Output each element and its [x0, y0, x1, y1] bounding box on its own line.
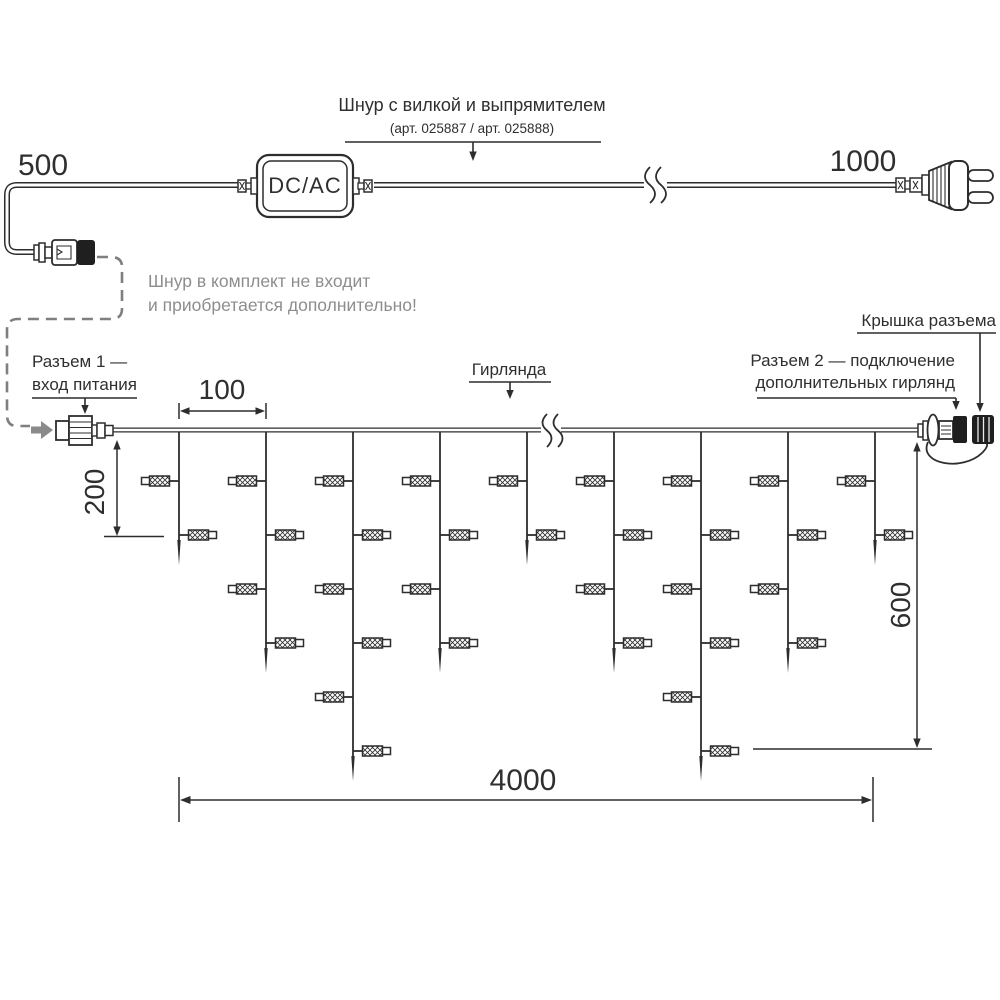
- lamp-right: [701, 530, 739, 540]
- lamp-left: [403, 584, 441, 594]
- dimension-4000: 4000: [179, 764, 873, 822]
- dimension-600: 600: [753, 442, 932, 749]
- lamp-left: [577, 584, 615, 594]
- lamp-right: [614, 638, 652, 648]
- callouts: Разъем 1 — вход питания Гирлянда Разъем …: [32, 311, 997, 414]
- strand: [229, 433, 304, 674]
- connector2-body: [953, 416, 967, 443]
- strand: [577, 433, 652, 674]
- strand: [316, 433, 391, 782]
- cord-right-wire: [374, 167, 897, 203]
- cap-label: Крышка разъема: [861, 311, 996, 330]
- lamp-left: [664, 476, 702, 486]
- cord-left-wire: [7, 185, 238, 252]
- lamp-left: [316, 476, 354, 486]
- lamp-left: [229, 584, 267, 594]
- lamp-right: [353, 530, 391, 540]
- garland-main-wire: [113, 414, 918, 447]
- dimension-100: 100: [179, 374, 266, 419]
- strand: [403, 433, 478, 674]
- cord-label-line1: Шнур с вилкой и выпрямителем: [338, 95, 605, 115]
- connector-cap: [972, 415, 994, 444]
- lamp-right: [527, 530, 565, 540]
- plug-pin: [968, 170, 993, 181]
- dimension-200: 200: [79, 440, 164, 537]
- lamp-right: [440, 530, 478, 540]
- note-line1: Шнур в комплект не входит: [148, 271, 370, 291]
- garland-assembly: [56, 414, 994, 781]
- garland-diagram: DC/AC: [0, 0, 1000, 1000]
- lamp-right: [701, 746, 739, 756]
- connector-black-cap: [77, 240, 95, 265]
- cord-label-line2: (арт. 025887 / арт. 025888): [390, 121, 554, 136]
- lamp-left: [838, 476, 876, 486]
- connector1-label-line2: вход питания: [32, 375, 137, 394]
- dim-1000: 1000: [830, 145, 897, 178]
- lamp-right: [179, 530, 217, 540]
- wire-break-icon: [645, 167, 655, 203]
- note-line2: и приобретается дополнительно!: [148, 295, 417, 315]
- lamp-left: [751, 584, 789, 594]
- strand: [751, 433, 826, 674]
- lamp-left: [490, 476, 528, 486]
- connector2-label-line1: Разъем 2 — подключение: [750, 351, 955, 370]
- strand: [838, 433, 913, 566]
- garland-leader: [469, 382, 551, 399]
- dim-200-text: 200: [79, 469, 110, 516]
- garland-connector-1: [56, 416, 113, 445]
- diagram-page: DC/AC: [0, 0, 1000, 1000]
- dim-100-text: 100: [199, 374, 246, 405]
- garland-label: Гирлянда: [472, 360, 547, 379]
- lamp-left: [403, 476, 441, 486]
- plug-pin: [968, 192, 993, 203]
- lamp-right: [701, 638, 739, 648]
- strand: [664, 433, 739, 782]
- converter-left-nub: [238, 178, 257, 194]
- lamp-left: [142, 476, 180, 486]
- dim-4000-text: 4000: [490, 764, 557, 797]
- lamp-left: [316, 692, 354, 702]
- dim-600-text: 600: [885, 582, 916, 629]
- lamp-right: [614, 530, 652, 540]
- strand: [142, 433, 217, 566]
- strand: [490, 433, 565, 566]
- connector2-leader: [757, 398, 960, 410]
- euro-plug: [896, 161, 993, 210]
- power-cord-assembly: DC/AC: [7, 95, 993, 265]
- lamp-right: [440, 638, 478, 648]
- lamp-left: [751, 476, 789, 486]
- lamp-right: [353, 638, 391, 648]
- lamp-right: [266, 530, 304, 540]
- strand-group: [142, 433, 913, 782]
- lamp-right: [353, 746, 391, 756]
- connector1-label-line1: Разъем 1 —: [32, 352, 127, 371]
- lamp-left: [229, 476, 267, 486]
- adapter-output-connector: [34, 240, 95, 265]
- connector1-leader: [32, 398, 137, 414]
- plug-in-arrow-icon: [31, 421, 53, 439]
- connector2-label-line2: дополнительных гирлянд: [755, 373, 955, 392]
- dc-ac-converter: DC/AC: [238, 155, 372, 217]
- converter-label: DC/AC: [268, 173, 341, 198]
- converter-right-nub: [353, 178, 372, 194]
- lamp-left: [316, 584, 354, 594]
- lamp-right: [266, 638, 304, 648]
- dashed-connection-path: [7, 257, 122, 439]
- dim-500: 500: [18, 149, 68, 182]
- lamp-left: [664, 584, 702, 594]
- lamp-right: [788, 530, 826, 540]
- wire-break-icon: [543, 414, 552, 447]
- lamp-right: [875, 530, 913, 540]
- lamp-left: [664, 692, 702, 702]
- garland-connector-2: [918, 415, 994, 464]
- lamp-left: [577, 476, 615, 486]
- lamp-right: [788, 638, 826, 648]
- cord-label-leader: [345, 142, 601, 161]
